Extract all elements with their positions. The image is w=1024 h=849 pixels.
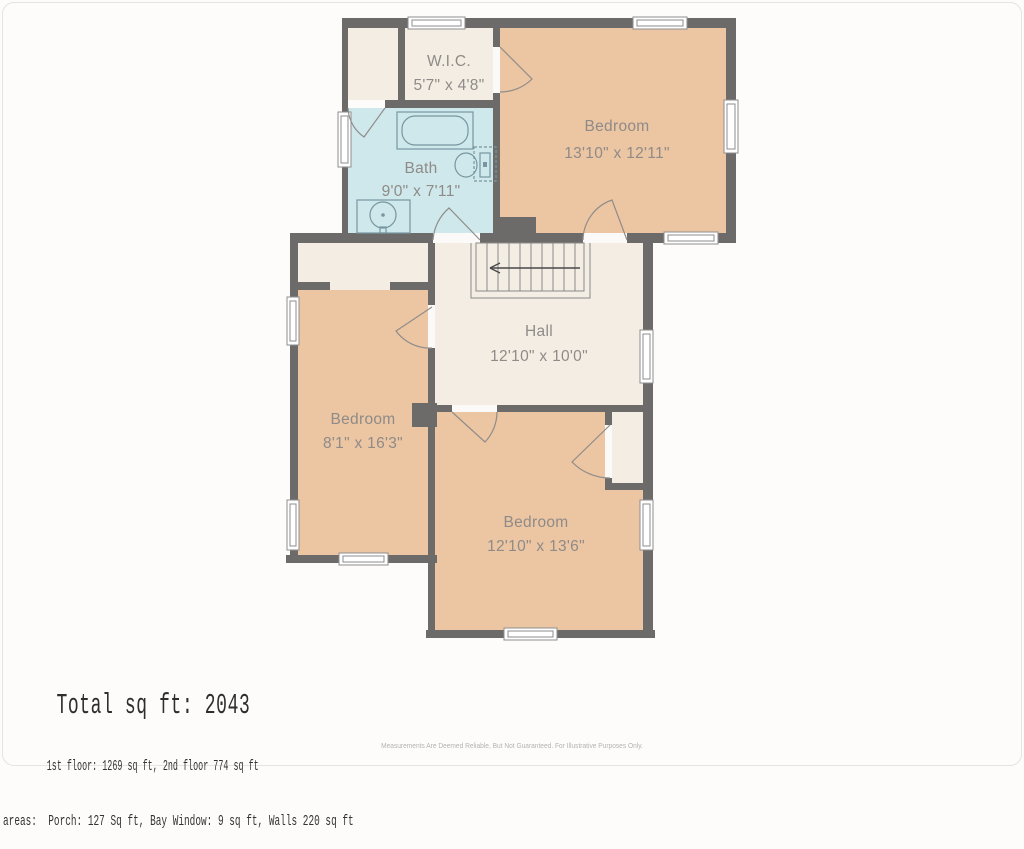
disclaimer-text: Measurements Are Deemed Reliable, But No…	[381, 741, 643, 750]
label-wic-dims: 5'7" x 4'8"	[413, 77, 484, 94]
floor-plan: W.I.C. 5'7" x 4'8" Bath 9'0" x 7'11" Bed…	[0, 0, 1024, 768]
door-opening	[605, 425, 612, 478]
window	[504, 628, 557, 640]
wall	[605, 412, 612, 425]
window	[338, 112, 351, 167]
wall	[390, 282, 428, 290]
window	[724, 100, 738, 153]
window	[408, 17, 465, 29]
wall-notch	[500, 217, 536, 237]
door-opening	[428, 305, 435, 348]
window	[287, 297, 299, 345]
area-summary: Total sq ft: 2043 1st floor: 1269 sq ft,…	[0, 655, 503, 849]
wall	[428, 243, 435, 637]
label-hall-name: Hall	[525, 323, 553, 340]
label-bedroom-top-name: Bedroom	[585, 118, 650, 135]
window	[339, 553, 388, 565]
label-hall-dims: 12'10" x 10'0"	[490, 348, 588, 365]
door-opening	[433, 233, 480, 243]
label-bath-name: Bath	[404, 160, 437, 177]
wall	[298, 282, 330, 290]
label-wic-name: W.I.C.	[427, 53, 471, 70]
label-bath-dims: 9'0" x 7'11"	[382, 183, 461, 200]
room-closet-top-left	[348, 28, 398, 100]
window	[633, 17, 687, 29]
label-bedroom-bottom-dims: 12'10" x 13'6"	[487, 538, 585, 555]
door-opening	[583, 233, 627, 243]
total-sqft-text: Total sq ft: 2043	[56, 691, 250, 721]
window	[640, 330, 653, 383]
door-opening	[493, 47, 500, 93]
label-bedroom-bottom-name: Bedroom	[504, 514, 569, 531]
window	[287, 500, 299, 550]
label-bedroom-left-dims: 8'1" x 16'3"	[323, 435, 403, 452]
label-bedroom-left-name: Bedroom	[331, 411, 396, 428]
window	[640, 500, 653, 550]
door-opening	[452, 405, 497, 412]
room-bedroom-bottom-closet	[612, 412, 643, 483]
wall	[643, 243, 653, 637]
window	[664, 232, 718, 244]
wall	[385, 100, 500, 108]
wall	[605, 478, 612, 490]
excluded-areas-text: excluded areas: Porch: 127 Sq ft, Bay Wi…	[0, 813, 354, 831]
wall	[398, 28, 405, 100]
label-bedroom-top-dims: 13'10" x 12'11"	[564, 145, 670, 162]
